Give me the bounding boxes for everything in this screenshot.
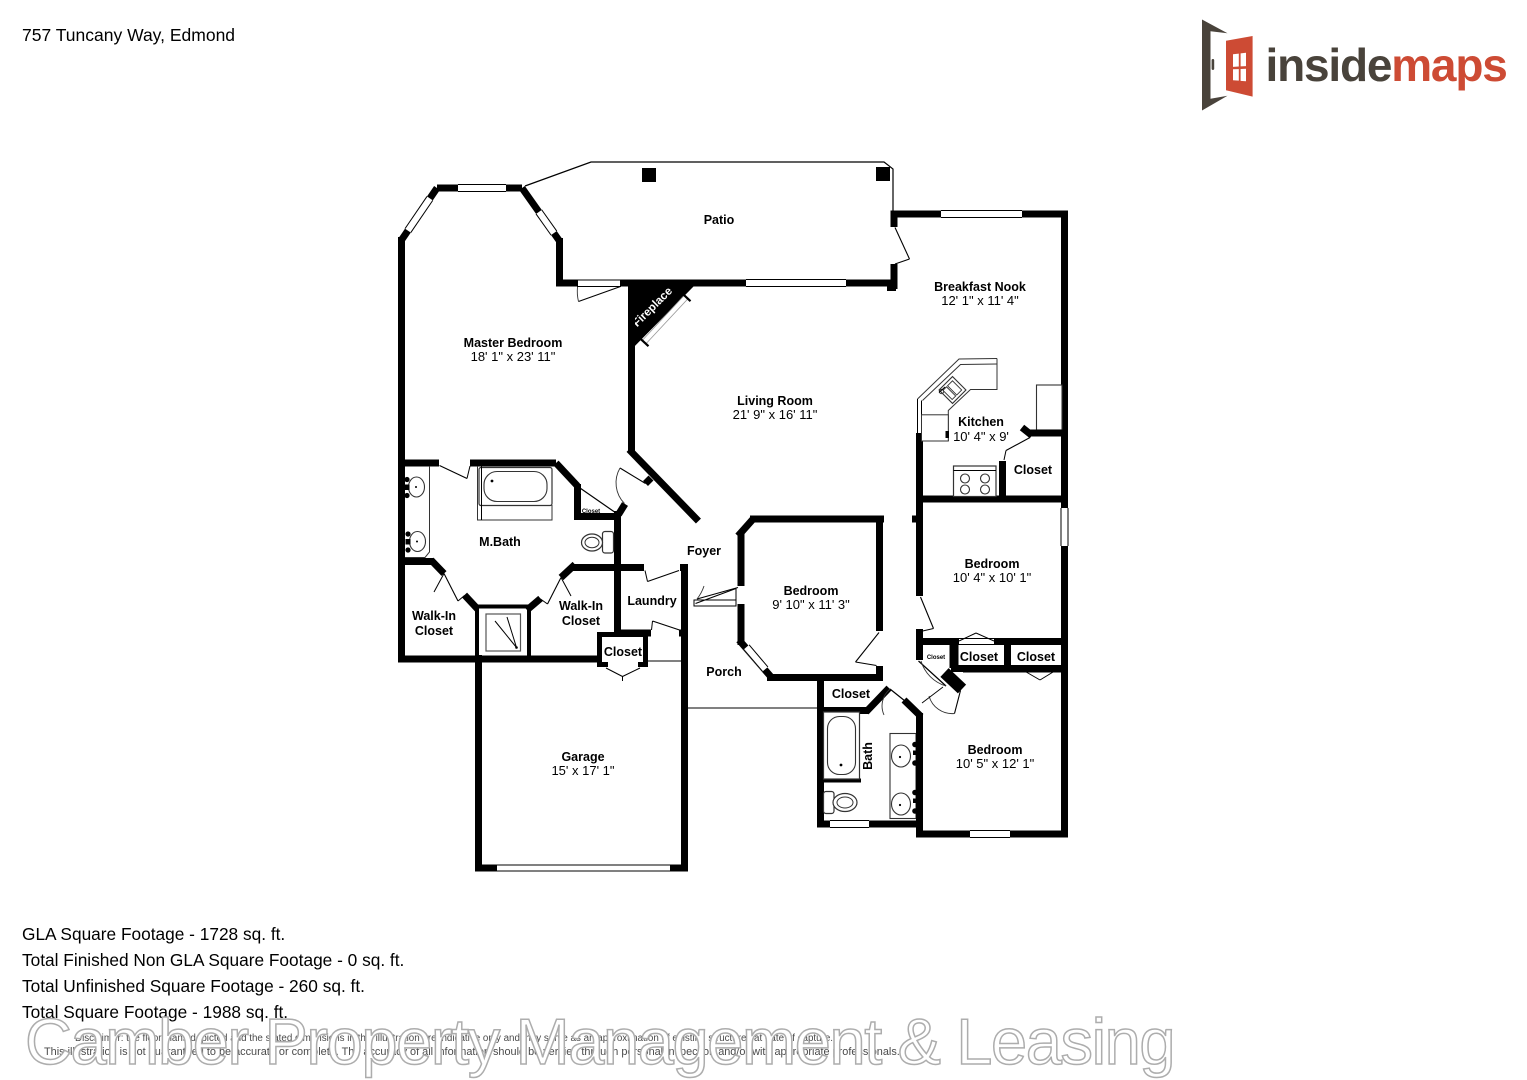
svg-text:21' 9" x 16' 11": 21' 9" x 16' 11": [733, 407, 818, 422]
svg-text:Walk-In: Walk-In: [559, 599, 603, 613]
svg-text:10' 5" x 12' 1": 10' 5" x 12' 1": [956, 756, 1035, 771]
svg-text:Breakfast Nook: Breakfast Nook: [934, 280, 1026, 294]
svg-text:Porch: Porch: [706, 665, 741, 679]
svg-text:Closet: Closet: [562, 614, 601, 628]
svg-text:12' 1" x 11' 4": 12' 1" x 11' 4": [941, 293, 1019, 308]
svg-text:Patio: Patio: [704, 213, 735, 227]
svg-text:Garage: Garage: [561, 750, 604, 764]
svg-text:Bath: Bath: [861, 742, 875, 770]
svg-text:Laundry: Laundry: [627, 594, 676, 608]
svg-text:Closet: Closet: [1017, 650, 1056, 664]
svg-text:Closet: Closet: [960, 650, 999, 664]
svg-text:Kitchen: Kitchen: [958, 415, 1004, 429]
svg-text:10' 4" x 9': 10' 4" x 9': [953, 429, 1009, 444]
svg-text:M.Bath: M.Bath: [479, 535, 521, 549]
svg-text:Bedroom: Bedroom: [784, 584, 839, 598]
svg-text:Closet: Closet: [582, 509, 600, 515]
svg-text:9' 10" x 11' 3": 9' 10" x 11' 3": [772, 597, 850, 612]
svg-text:Closet: Closet: [832, 687, 871, 701]
svg-text:15' x 17' 1": 15' x 17' 1": [551, 763, 614, 778]
svg-text:Closet: Closet: [415, 624, 454, 638]
svg-text:Closet: Closet: [927, 655, 945, 661]
svg-text:Foyer: Foyer: [687, 544, 721, 558]
svg-text:Bedroom: Bedroom: [968, 743, 1023, 757]
svg-text:Camber Property Management & L: Camber Property Management & Leasing: [25, 1005, 1174, 1078]
svg-text:10' 4" x 10' 1": 10' 4" x 10' 1": [953, 570, 1032, 585]
svg-text:Walk-In: Walk-In: [412, 609, 456, 623]
svg-text:Closet: Closet: [1014, 463, 1053, 477]
svg-text:Bedroom: Bedroom: [965, 557, 1020, 571]
svg-text:Living Room: Living Room: [737, 394, 813, 408]
svg-text:Master Bedroom: Master Bedroom: [464, 336, 563, 350]
svg-text:18' 1" x 23' 11": 18' 1" x 23' 11": [471, 349, 556, 364]
svg-text:Closet: Closet: [604, 645, 643, 659]
